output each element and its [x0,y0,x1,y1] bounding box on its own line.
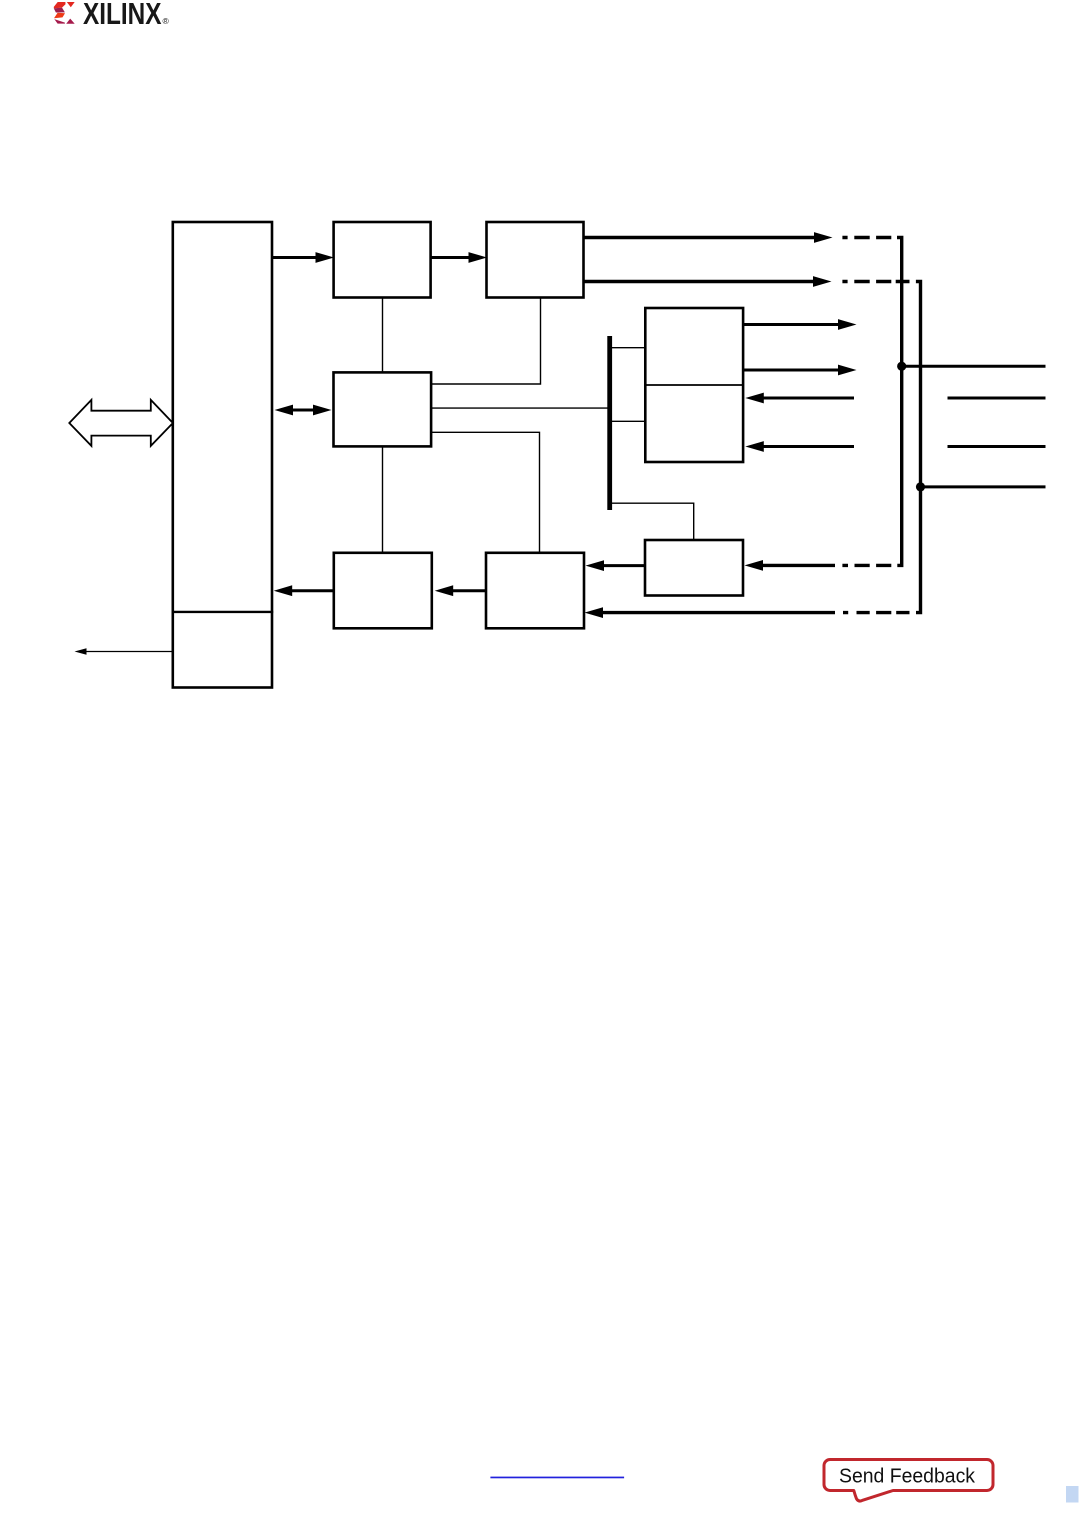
svg-text:Send Feedback: Send Feedback [839,1466,976,1488]
svg-text:®: ® [163,16,170,26]
svg-text:XILINX: XILINX [83,0,162,31]
